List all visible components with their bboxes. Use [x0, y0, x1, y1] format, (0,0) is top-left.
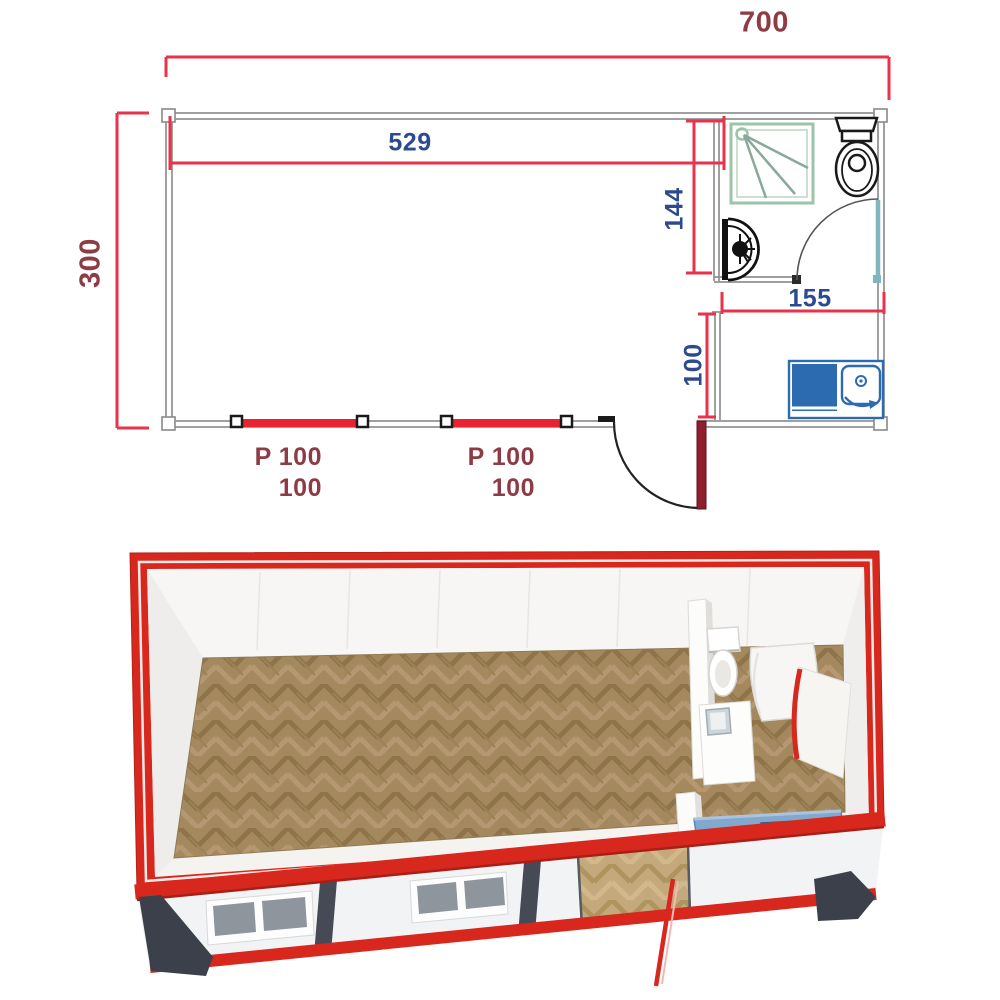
- facade-window-2: [410, 872, 508, 923]
- dim-label-100: 100: [680, 343, 709, 386]
- window-2-label-line2: 100: [453, 473, 535, 504]
- dim-line-300: [117, 113, 149, 428]
- window-2-label-line1: P 100: [453, 442, 535, 473]
- sink-cabinet-3d: [699, 701, 755, 785]
- render-3d: [130, 551, 885, 986]
- dim-label-700: 700: [739, 7, 789, 40]
- entrance-door-leaf: [697, 421, 706, 509]
- plan-window-2: [441, 416, 572, 427]
- dim-line-700: [166, 57, 889, 100]
- dim-label-144: 144: [661, 187, 690, 230]
- window-1-label: P 100 100: [240, 442, 322, 504]
- plan-corner-markers: [162, 109, 887, 430]
- shower-symbol: [731, 124, 813, 203]
- dim-label-155: 155: [788, 285, 831, 314]
- window-1-label-line1: P 100: [240, 442, 322, 473]
- plan-bathroom: [722, 118, 878, 280]
- toilet-symbol: [836, 118, 878, 196]
- facade-window-1: [206, 891, 314, 945]
- plan-window-1: [231, 416, 368, 427]
- window-1-label-line2: 100: [240, 473, 322, 504]
- kitchen-unit-symbol: [789, 361, 883, 418]
- dim-line-529: [170, 116, 724, 170]
- basin-symbol: [722, 219, 758, 280]
- window-2-label: P 100 100: [453, 442, 535, 504]
- plan-exterior-walls: [166, 113, 884, 427]
- page: 700 300 529 144 155 100 P 100 100 P 100 …: [0, 0, 1000, 1000]
- toilet-3d: [707, 627, 740, 696]
- dim-label-300: 300: [75, 238, 108, 288]
- plan-entrance-door: [598, 415, 706, 509]
- dim-label-529: 529: [388, 129, 431, 158]
- bathroom-door-symbol: [797, 199, 878, 280]
